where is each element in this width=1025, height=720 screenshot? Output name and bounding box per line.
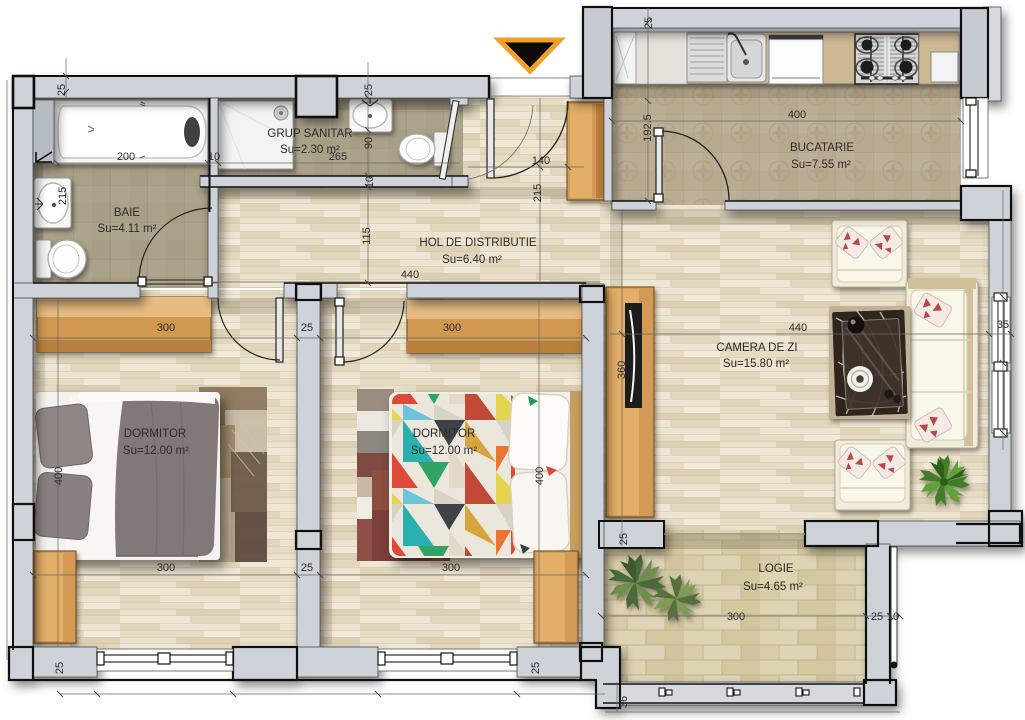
svg-text:400: 400 [53, 467, 65, 485]
svg-text:DORMITOR: DORMITOR [124, 428, 186, 440]
svg-text:10: 10 [208, 151, 220, 163]
svg-text:215: 215 [57, 187, 69, 205]
svg-text:300: 300 [157, 322, 175, 334]
svg-text:90: 90 [363, 137, 375, 149]
svg-text:GRUP SANITAR: GRUP SANITAR [267, 128, 352, 140]
svg-text:25: 25 [871, 611, 883, 623]
svg-text:Su=15.80 m²: Su=15.80 m² [723, 358, 789, 370]
svg-text:25: 25 [54, 662, 66, 674]
svg-text:Su=7.55 m²: Su=7.55 m² [791, 159, 851, 171]
svg-text:440: 440 [401, 269, 419, 281]
svg-text:440: 440 [789, 322, 807, 334]
svg-text:LOGIE: LOGIE [758, 563, 793, 575]
svg-text:CAMERA DE ZI: CAMERA DE ZI [716, 342, 797, 354]
svg-text:360: 360 [616, 361, 628, 379]
svg-text:265: 265 [329, 151, 347, 163]
svg-text:25: 25 [530, 662, 542, 674]
svg-text:300: 300 [157, 562, 175, 574]
svg-text:Su=12.00 m²: Su=12.00 m² [411, 445, 477, 457]
svg-text:200: 200 [117, 151, 135, 163]
svg-text:300: 300 [442, 562, 460, 574]
svg-text:25: 25 [363, 84, 375, 96]
svg-text:400: 400 [534, 467, 546, 485]
svg-text:115: 115 [361, 227, 373, 245]
svg-text:Su=4.11 m²: Su=4.11 m² [98, 223, 157, 235]
svg-text:25: 25 [301, 562, 313, 574]
svg-text:300: 300 [443, 322, 461, 334]
svg-text:25: 25 [643, 17, 655, 29]
svg-text:25: 25 [618, 533, 630, 545]
svg-text:25: 25 [56, 84, 68, 96]
svg-text:BAIE: BAIE [114, 207, 141, 219]
svg-text:Su=4.65 m²: Su=4.65 m² [743, 581, 803, 593]
svg-text:Su=12.00 m²: Su=12.00 m² [123, 445, 189, 457]
svg-text:36: 36 [618, 696, 630, 708]
svg-text:BUCATARIE: BUCATARIE [790, 142, 854, 154]
svg-text:35: 35 [997, 319, 1009, 331]
svg-text:DORMITOR: DORMITOR [413, 428, 475, 440]
svg-text:10: 10 [887, 611, 899, 623]
svg-text:25: 25 [301, 322, 313, 334]
svg-text:400: 400 [788, 109, 806, 121]
svg-text:300: 300 [727, 611, 745, 623]
svg-text:215: 215 [532, 184, 544, 202]
svg-text:192.5: 192.5 [642, 114, 654, 142]
svg-text:140: 140 [532, 155, 550, 167]
svg-text:Su=6.40 m²: Su=6.40 m² [442, 254, 502, 266]
svg-text:10: 10 [364, 176, 376, 188]
svg-text:HOL DE DISTRIBUTIE: HOL DE DISTRIBUTIE [419, 237, 536, 249]
